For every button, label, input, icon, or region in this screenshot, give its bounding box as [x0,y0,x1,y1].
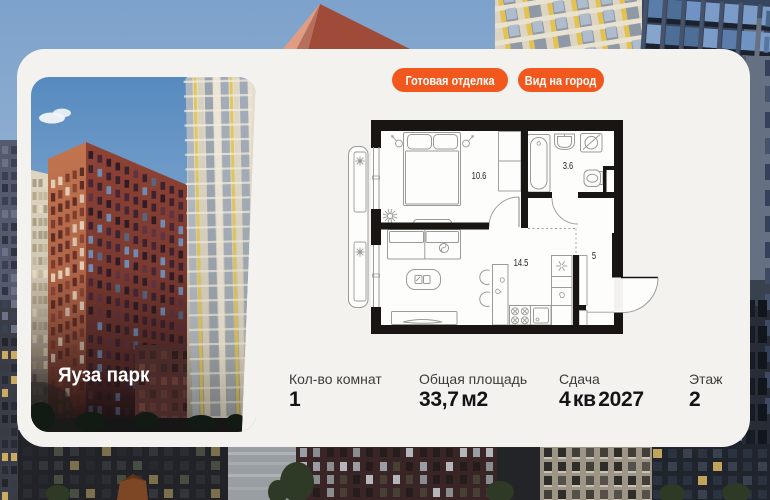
svg-text:3.6: 3.6 [563,160,574,171]
svg-text:Яуза парк: Яуза парк [58,364,150,387]
svg-text:5: 5 [592,250,596,261]
svg-text:14.5: 14.5 [514,257,529,268]
svg-text:10.6: 10.6 [472,170,487,181]
